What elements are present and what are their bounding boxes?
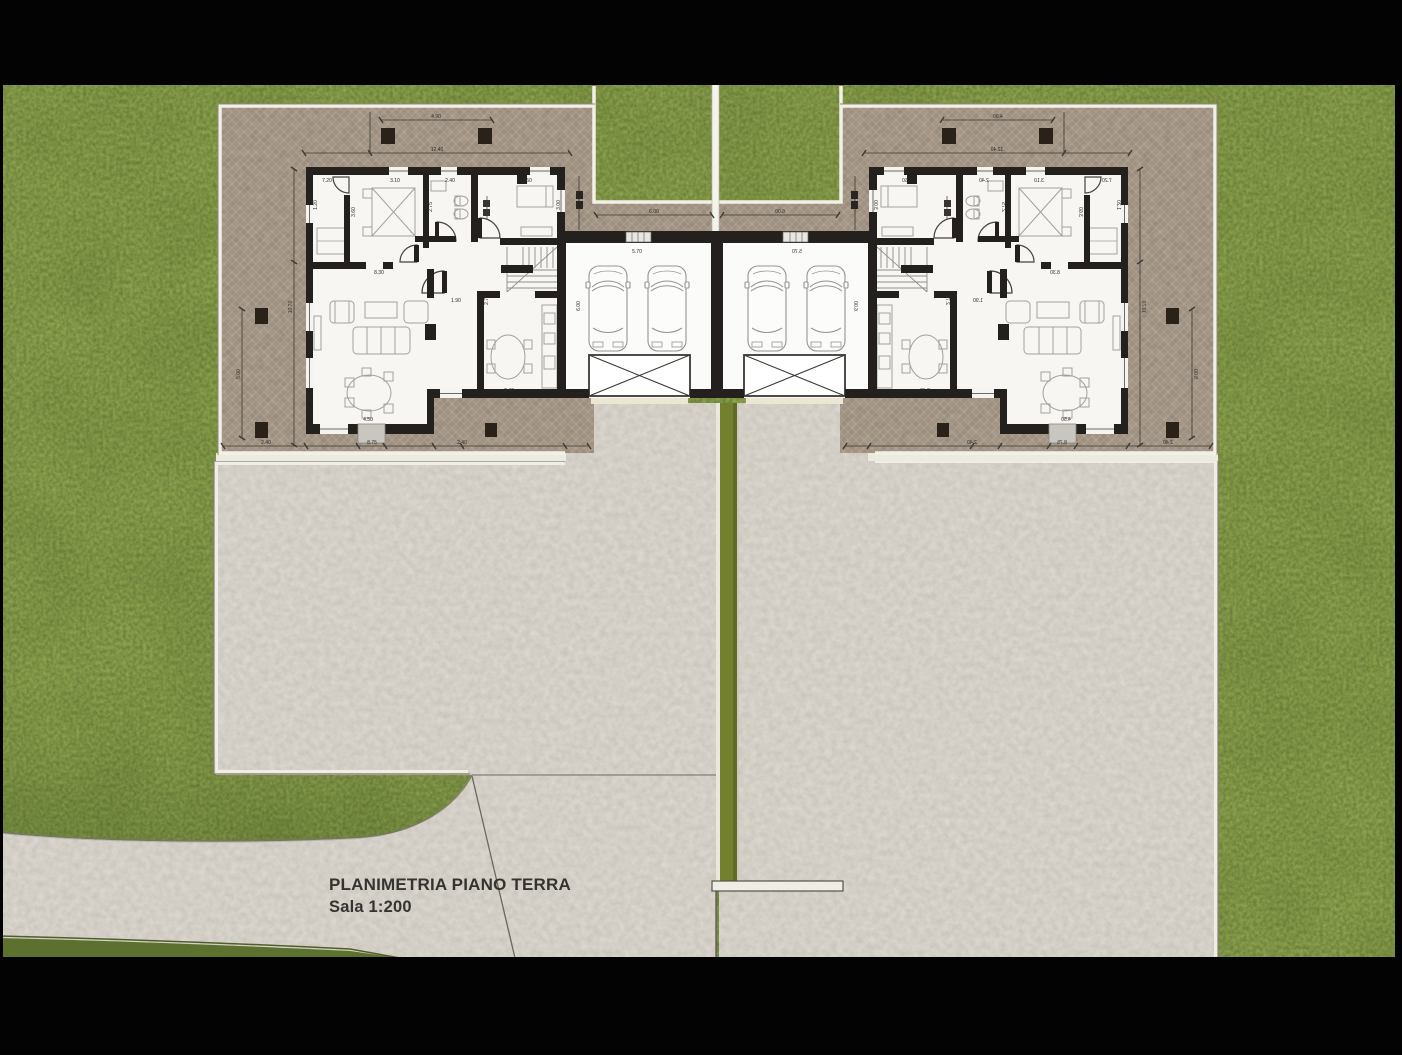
svg-text:1.90: 1.90 (451, 298, 461, 304)
svg-text:2.40: 2.40 (457, 440, 467, 446)
svg-text:6.00: 6.00 (649, 209, 659, 215)
svg-text:4.90: 4.90 (431, 114, 441, 120)
svg-text:3.00: 3.00 (556, 200, 562, 210)
svg-text:5.00: 5.00 (236, 369, 242, 379)
svg-text:2.40: 2.40 (261, 440, 271, 446)
svg-text:3.60: 3.60 (351, 207, 357, 217)
svg-text:1.20: 1.20 (313, 200, 319, 210)
svg-text:3.50: 3.50 (522, 178, 532, 184)
svg-text:4.50: 4.50 (363, 417, 373, 423)
svg-text:6.00: 6.00 (576, 301, 582, 311)
svg-text:3.10: 3.10 (390, 178, 400, 184)
svg-text:12.40: 12.40 (431, 147, 444, 153)
svg-text:8.75: 8.75 (367, 440, 377, 446)
svg-text:2.75: 2.75 (484, 295, 490, 305)
svg-text:2.40: 2.40 (445, 178, 455, 184)
svg-text:5.70: 5.70 (632, 249, 642, 255)
svg-text:10.70: 10.70 (288, 301, 294, 314)
svg-text:2.40: 2.40 (504, 388, 514, 394)
svg-text:2.75: 2.75 (428, 202, 434, 212)
svg-text:7.20: 7.20 (322, 178, 332, 184)
svg-text:8.30: 8.30 (374, 270, 384, 276)
svg-text:PLANIMETRIA PIANO TERRA: PLANIMETRIA PIANO TERRA (329, 875, 571, 894)
svg-text:Sala 1:200: Sala 1:200 (329, 898, 412, 916)
